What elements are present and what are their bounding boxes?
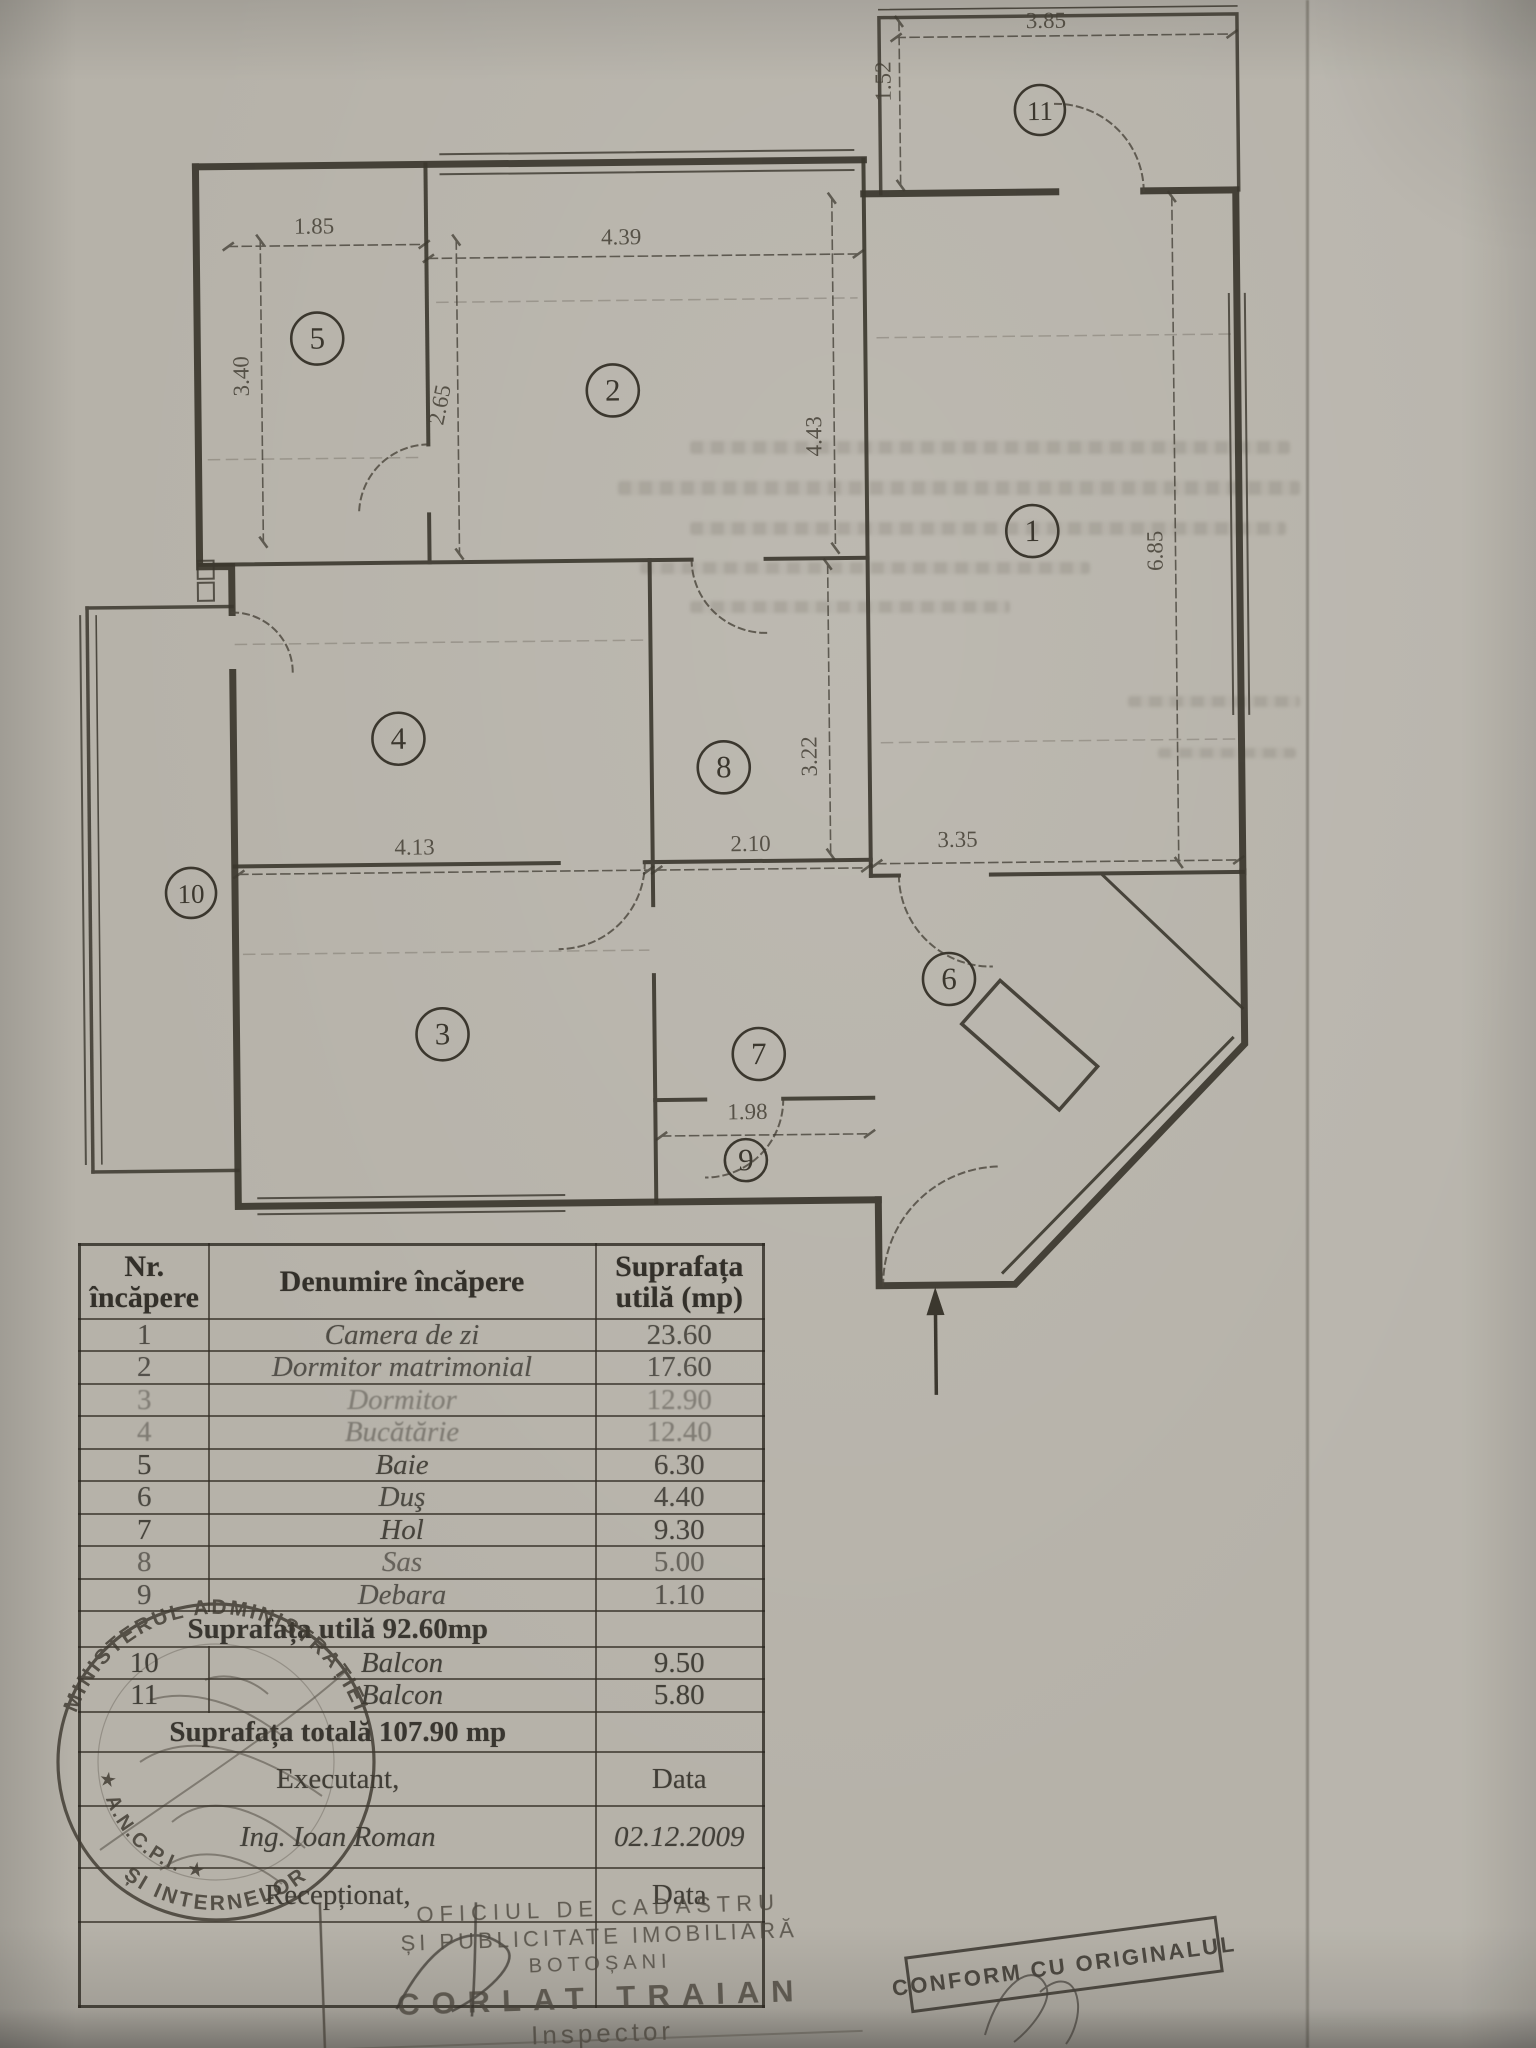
svg-text:9: 9	[738, 1142, 754, 1177]
bleed-through-text	[690, 441, 1290, 454]
bleed-through-text	[1158, 748, 1296, 758]
plan-guide-lines	[207, 294, 1239, 955]
dimension-label: 3.22	[796, 736, 821, 777]
executant-row: Executant,Data	[80, 1752, 764, 1806]
room-label-4: 4	[372, 712, 425, 765]
summary-totala-row: Suprafața totală 107.90 mp	[80, 1712, 764, 1752]
north-arrow	[926, 1287, 945, 1393]
empty-row	[80, 1922, 764, 2007]
corner-shadow	[1306, 0, 1536, 260]
room-label-2: 2	[587, 364, 640, 417]
scanned-floor-plan-document: Nr.încăpere Denumire încăpere Suprafațau…	[0, 0, 1536, 2048]
floor-plan: 1234567891011 3.851.521.854.393.402.654.…	[74, 6, 1256, 1402]
svg-text:2: 2	[605, 372, 621, 407]
dimension-label: 2.10	[730, 831, 771, 856]
room-label-5: 5	[291, 312, 344, 365]
door-arcs	[227, 103, 1155, 1293]
dimension-label: 1.98	[727, 1099, 768, 1124]
svg-text:8: 8	[716, 749, 732, 784]
svg-text:10: 10	[177, 879, 204, 909]
table-row: 4Bucătărie12.40	[80, 1416, 764, 1448]
svg-text:11: 11	[1027, 96, 1053, 126]
table-row: 7Hol9.30	[80, 1514, 764, 1546]
room-labels: 1234567891011	[158, 85, 1076, 1187]
table-row: 10Balcon9.50	[80, 1647, 764, 1679]
bleed-through-text	[618, 481, 1300, 495]
dimension-label: 1.52	[870, 61, 895, 102]
dimension-label: 2.65	[423, 383, 455, 427]
room-label-3: 3	[416, 1008, 469, 1061]
table-row: 8Sas5.00	[80, 1546, 764, 1578]
interior-walls	[195, 156, 1247, 1281]
dimension-label: 4.39	[601, 224, 642, 249]
windows	[75, 146, 1254, 1216]
summary-utila-row: Suprafața utilă 92.60mp	[80, 1611, 764, 1647]
bleed-through-text	[690, 522, 1286, 535]
room-label-8: 8	[697, 741, 750, 794]
bleed-through-text	[1128, 696, 1300, 707]
table-row: 1Camera de zi23.60	[80, 1319, 764, 1351]
table-header-row: Nr.încăpere Denumire încăpere Suprafațau…	[80, 1245, 764, 1320]
table-row: 11Balcon5.80	[80, 1679, 764, 1711]
svg-text:7: 7	[751, 1036, 767, 1071]
area-table-body: 1Camera de zi23.602Dormitor matrimonial1…	[80, 1319, 764, 2007]
table-row: 5Baie6.30	[80, 1449, 764, 1481]
area-table: Nr.încăpere Denumire încăpere Suprafațau…	[78, 1243, 765, 2008]
room-label-7: 7	[732, 1028, 785, 1081]
svg-text:4: 4	[391, 721, 407, 756]
receptionat-row: Recepționat,Data	[80, 1868, 764, 1922]
dimension-label: 3.85	[1026, 8, 1067, 33]
table-row: 2Dormitor matrimonial17.60	[80, 1351, 764, 1383]
room-label-6: 6	[923, 953, 976, 1006]
executant-name-row: Ing. Ioan Roman02.12.2009	[80, 1806, 764, 1868]
bleed-through-text	[640, 562, 1090, 574]
dimension-label: 6.85	[1142, 531, 1167, 572]
balcony-walls	[81, 6, 1249, 1172]
outer-walls	[195, 156, 1247, 1293]
room-label-10: 10	[166, 868, 217, 919]
header-nr: Nr.încăpere	[80, 1245, 209, 1320]
table-row: 6Duş4.40	[80, 1481, 764, 1513]
bottom-shadow	[0, 2008, 1536, 2048]
table-row: 9Debara1.10	[80, 1579, 764, 1611]
svg-text:CONFORM CU ORIGINALUL: CONFORM CU ORIGINALUL	[890, 1931, 1237, 2001]
room-label-9: 9	[725, 1139, 767, 1181]
paper-fold-highlight	[1309, 0, 1536, 2048]
dimension-lines	[226, 18, 1244, 1140]
dimension-label: 4.13	[394, 834, 435, 859]
dimension-label: 1.85	[294, 213, 335, 238]
bleed-through-text	[690, 601, 1010, 613]
svg-text:5: 5	[309, 320, 325, 355]
svg-text:3: 3	[435, 1016, 451, 1051]
conform-stamp: CONFORM CU ORIGINALUL	[888, 1915, 1239, 2014]
header-suprafata: Suprafațautilă (mp)	[596, 1245, 764, 1320]
header-denumire: Denumire încăpere	[209, 1245, 596, 1320]
room-label-11: 11	[1015, 85, 1066, 136]
table-row: 3Dormitor12.90	[80, 1384, 764, 1416]
dimension-label: 3.40	[228, 356, 253, 397]
dimension-label: 3.35	[937, 827, 978, 852]
svg-text:6: 6	[941, 961, 957, 996]
